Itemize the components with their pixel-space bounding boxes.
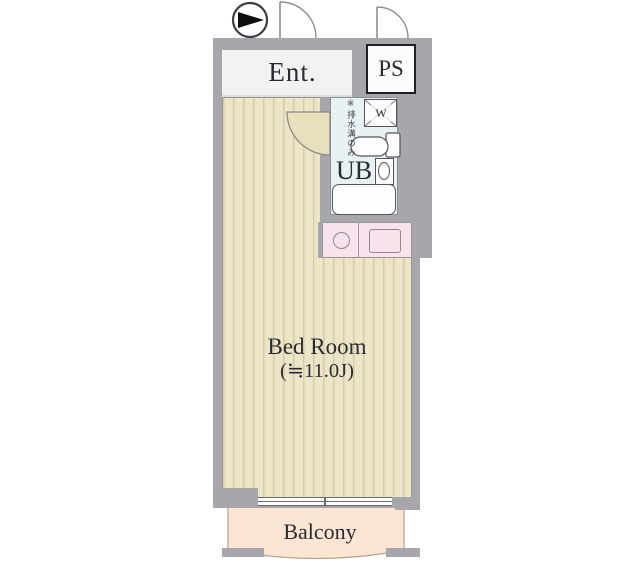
wall-left xyxy=(213,38,222,508)
ps-door-swing-arc xyxy=(377,7,408,38)
wall-right-lower xyxy=(412,258,420,510)
wall-kitchen-right xyxy=(412,222,432,258)
stove-burner xyxy=(333,232,350,249)
wall-kitchen-left xyxy=(318,222,322,258)
balcony-stub-right xyxy=(386,548,420,557)
wall-bath-left-lower xyxy=(320,155,330,222)
balcony-stub-left xyxy=(222,548,264,557)
bedroom-label: Bed Room xyxy=(222,334,412,360)
bedroom-size-label: (≒11.0J) xyxy=(222,360,412,384)
wall-right-of-bath xyxy=(398,97,432,222)
bedroom-label-block: Bed Room (≒11.0J) xyxy=(222,334,412,384)
compass-icon xyxy=(233,3,267,37)
kitchen-area xyxy=(322,222,412,258)
wall-bottom-left-block xyxy=(213,488,258,508)
wall-bath-left-upper xyxy=(320,97,330,112)
balcony-label: Balcony xyxy=(240,517,400,547)
bath-basin-bowl xyxy=(378,162,390,180)
kitchen-divider xyxy=(358,223,359,257)
window-center-tick xyxy=(324,498,326,505)
kitchen-sink xyxy=(369,229,401,253)
wall-below-bath xyxy=(322,215,412,222)
washer-label: W xyxy=(371,104,391,122)
pipe-space-label: PS xyxy=(378,56,404,82)
pipe-space-box: PS xyxy=(366,44,416,94)
washer-pan: W xyxy=(364,99,397,127)
unit-bath-label: UB xyxy=(330,156,378,186)
balcony-window xyxy=(258,497,392,506)
entrance-label: Ent. xyxy=(240,52,345,92)
floor-plan: PS W ※排水溝のみ UB Ent. xyxy=(0,0,640,569)
wall-bottom-right-block xyxy=(395,497,420,510)
bathtub xyxy=(332,184,396,215)
entrance-door-swing-arc xyxy=(280,2,316,38)
